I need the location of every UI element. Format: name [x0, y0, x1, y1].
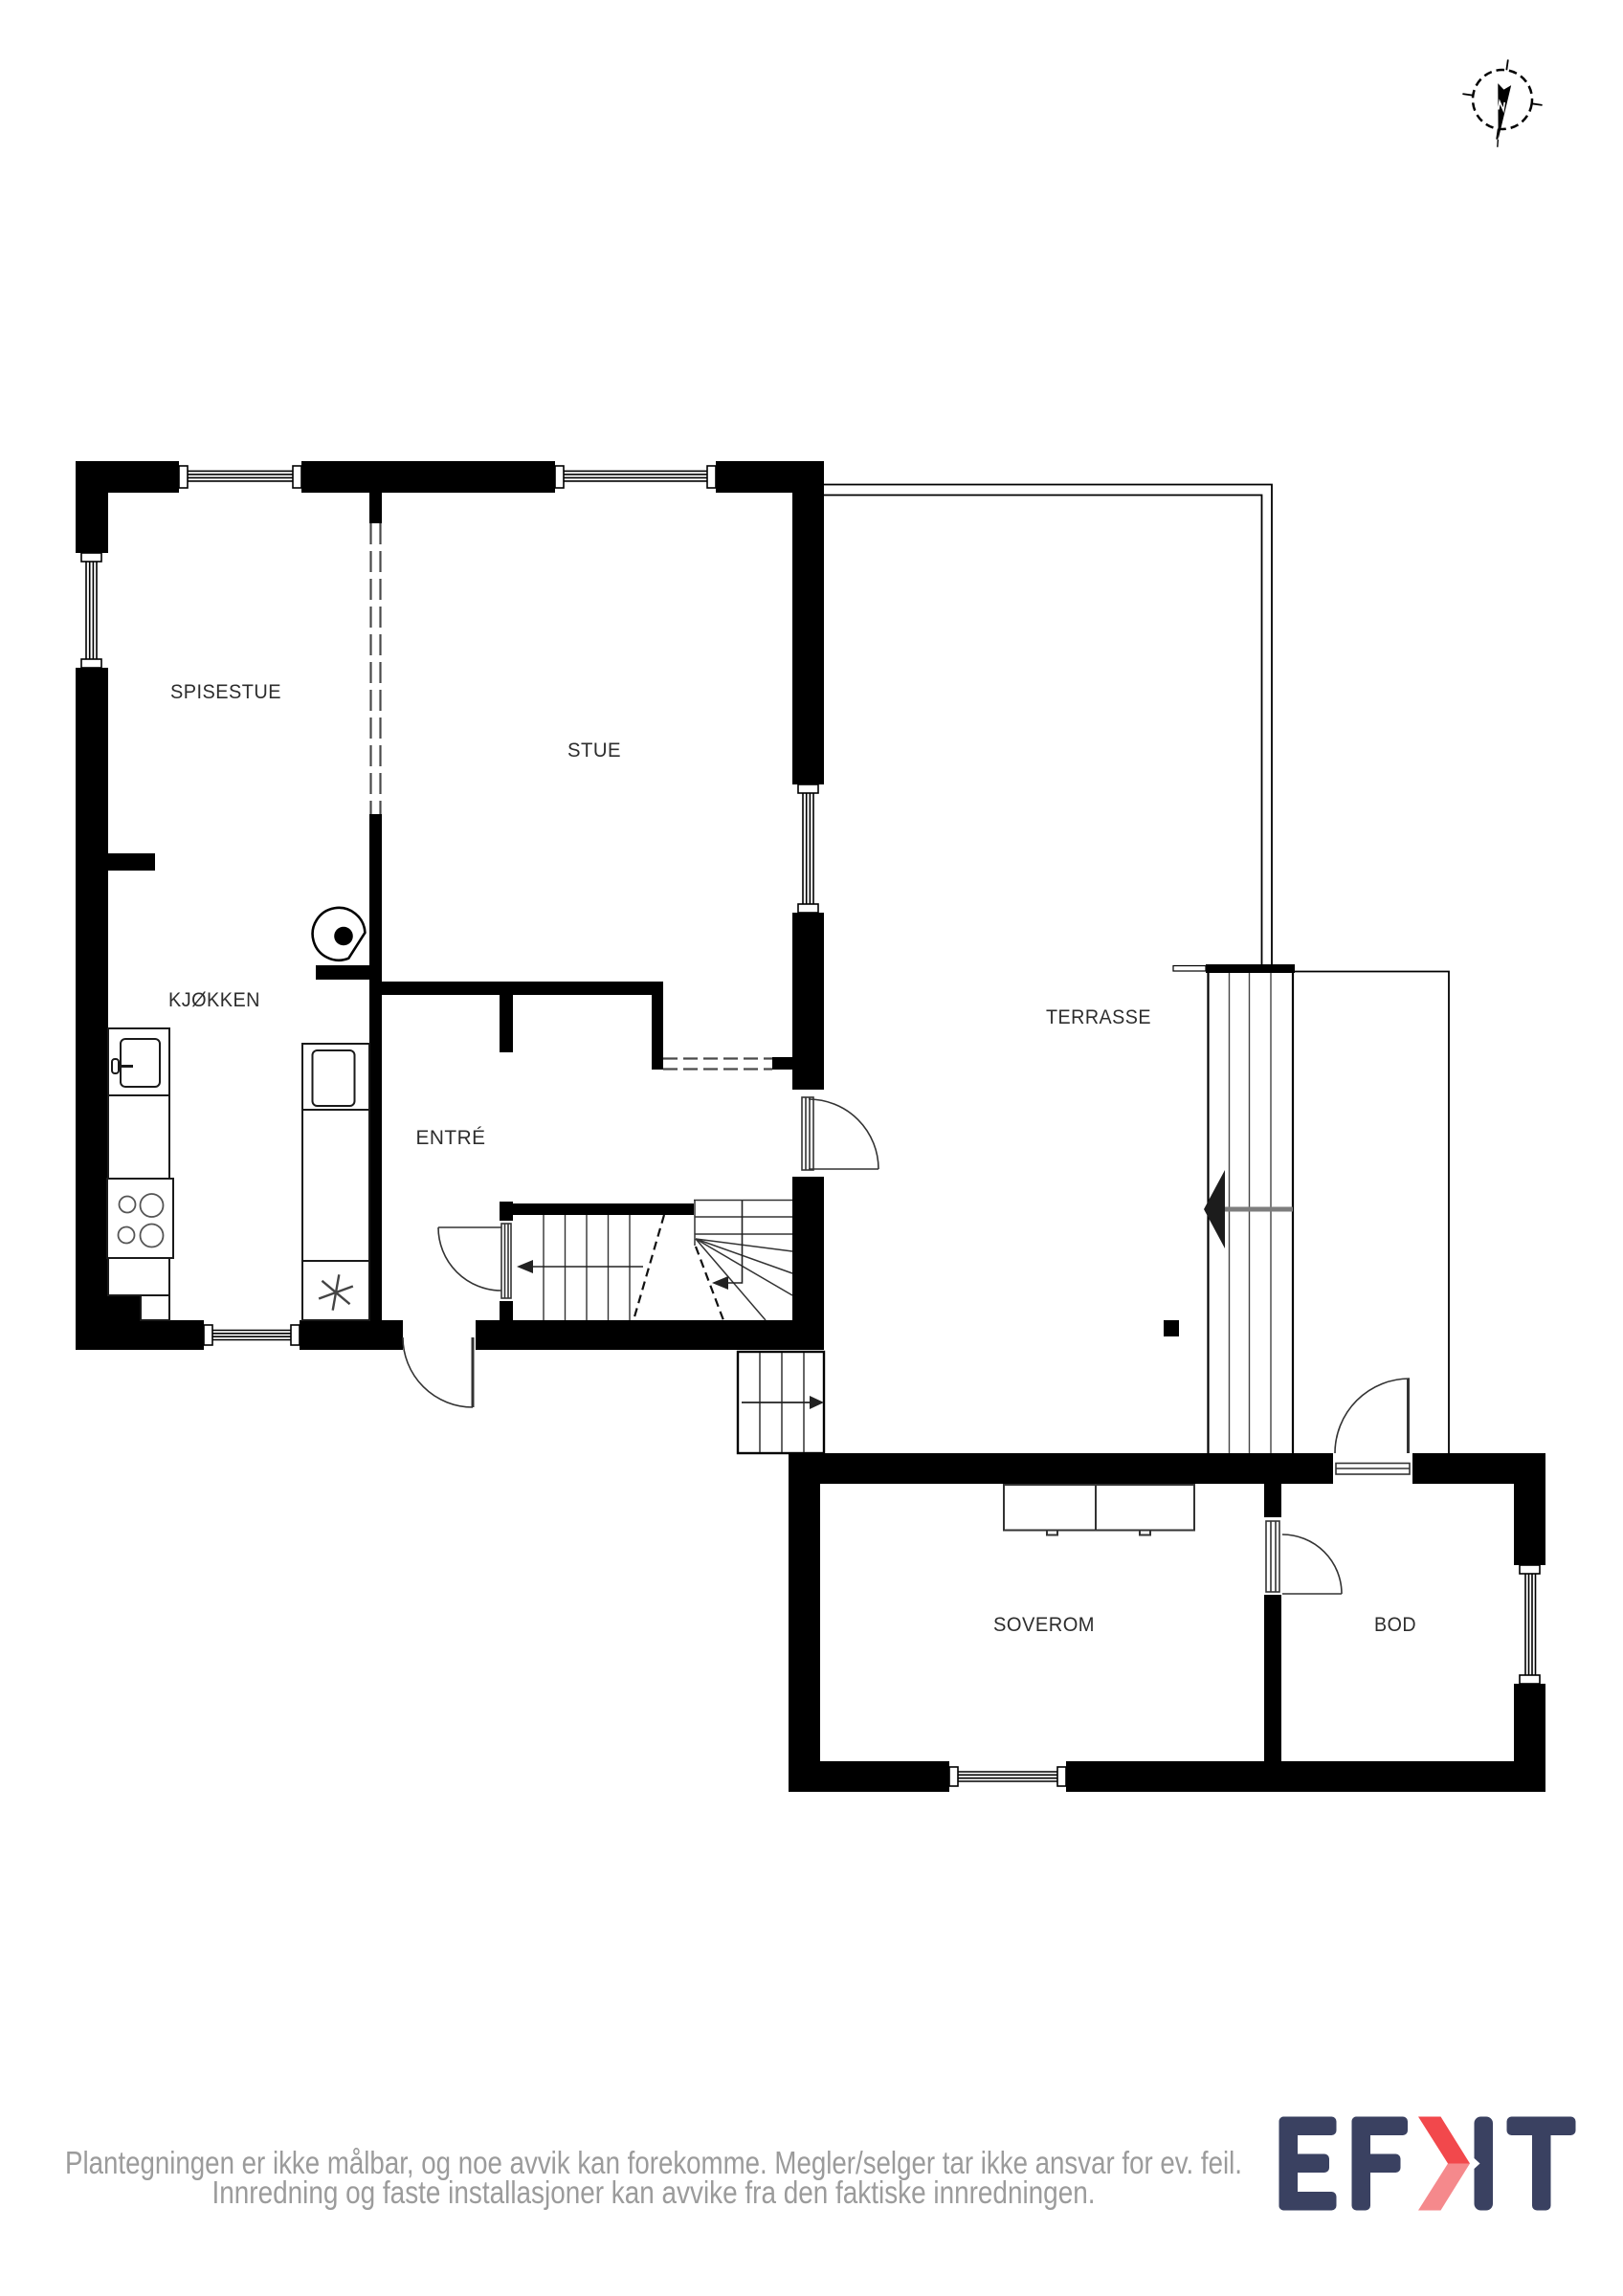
svg-text:TERRASSE: TERRASSE: [1046, 1005, 1151, 1028]
svg-text:KJØKKEN: KJØKKEN: [168, 988, 260, 1011]
svg-text:SPISESTUE: SPISESTUE: [170, 680, 281, 703]
svg-text:SOVEROM: SOVEROM: [993, 1613, 1095, 1636]
svg-text:Innredning og faste installasj: Innredning og faste installasjoner kan a…: [212, 2175, 1096, 2210]
svg-text:STUE: STUE: [567, 739, 621, 762]
svg-text:BOD: BOD: [1374, 1613, 1416, 1636]
svg-text:ENTRÉ: ENTRÉ: [416, 1125, 486, 1149]
